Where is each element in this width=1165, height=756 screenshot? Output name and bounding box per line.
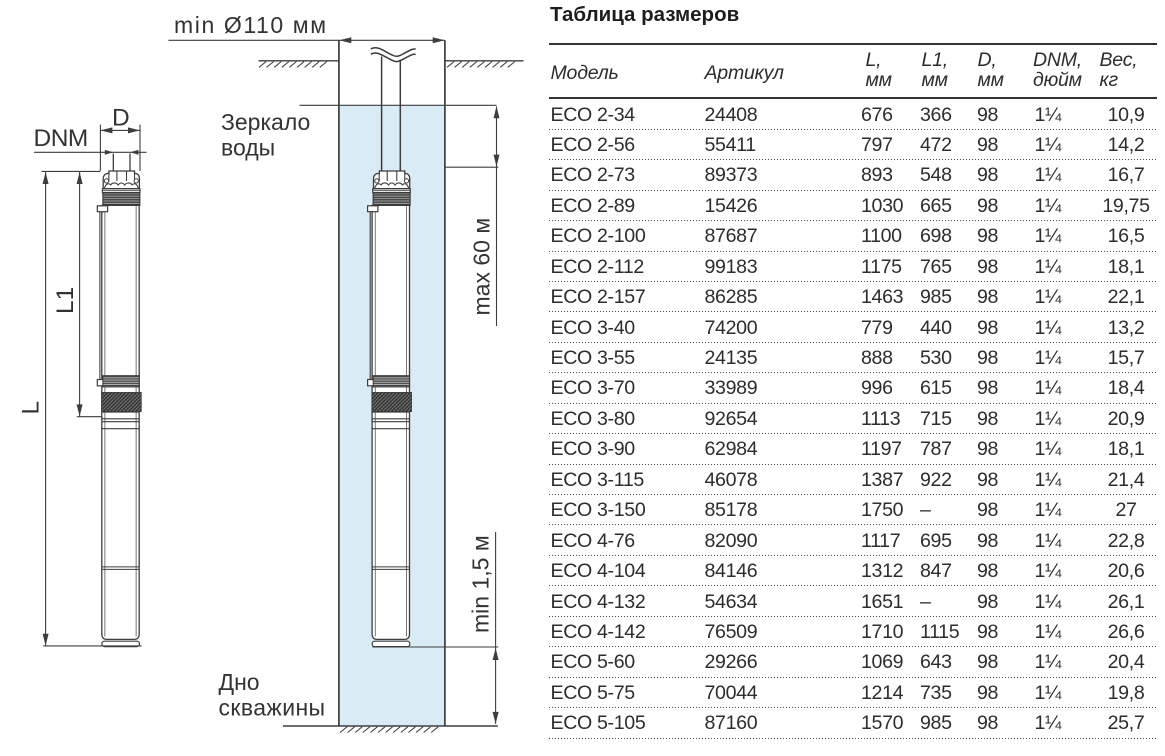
svg-text:L1: L1 (52, 287, 79, 314)
svg-text:min Ø110 мм: min Ø110 мм (174, 12, 328, 38)
svg-text:Дно: Дно (219, 669, 260, 695)
svg-text:Зеркало: Зеркало (221, 109, 310, 135)
svg-text:воды: воды (221, 135, 275, 161)
svg-text:D: D (112, 104, 130, 131)
svg-text:DNM: DNM (34, 125, 88, 152)
svg-text:скважины: скважины (219, 695, 326, 721)
svg-text:max 60 м: max 60 м (469, 218, 495, 316)
svg-text:min 1,5 м: min 1,5 м (468, 535, 494, 633)
svg-text:L: L (18, 401, 45, 415)
